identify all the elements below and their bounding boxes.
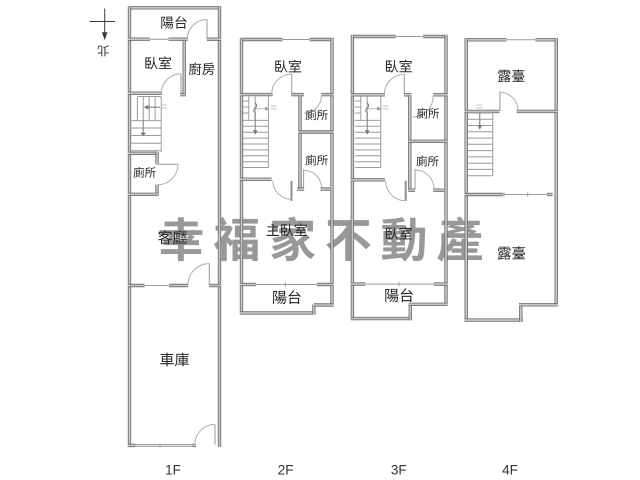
- svg-text:3F: 3F: [391, 463, 407, 478]
- svg-text:2F: 2F: [278, 463, 294, 478]
- svg-text:4F: 4F: [502, 463, 518, 478]
- svg-text:1F: 1F: [165, 463, 181, 478]
